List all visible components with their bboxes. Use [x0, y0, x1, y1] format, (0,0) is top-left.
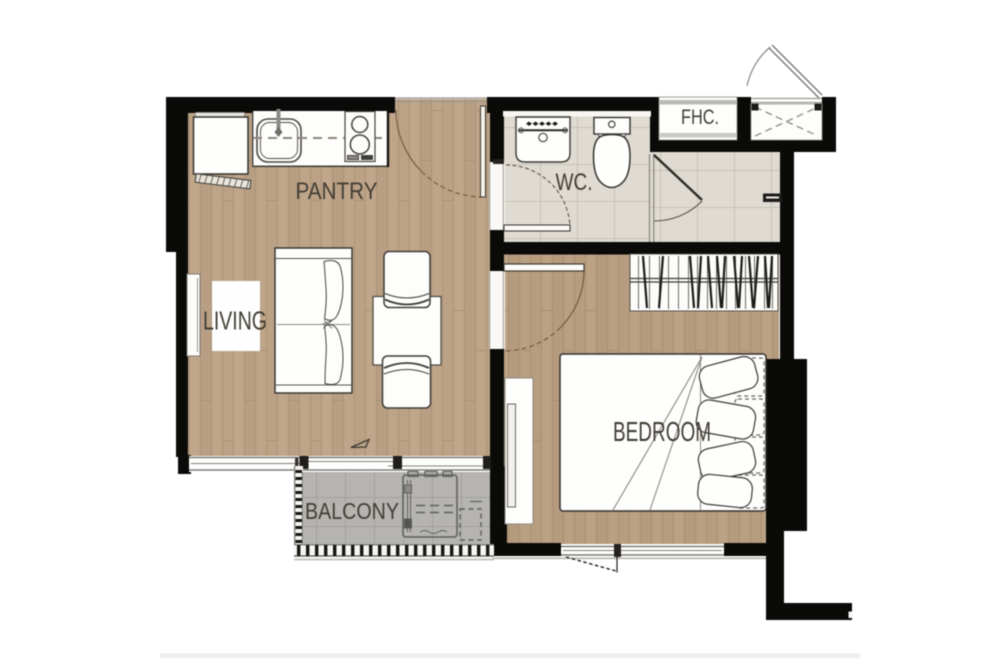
svg-text:PANTRY: PANTRY — [296, 178, 378, 205]
svg-text:WC.: WC. — [556, 169, 593, 196]
svg-text:FHC.: FHC. — [681, 105, 719, 129]
svg-text:LIVING: LIVING — [203, 308, 267, 336]
svg-text:BALCONY: BALCONY — [305, 498, 399, 524]
svg-text:BEDROOM: BEDROOM — [613, 416, 711, 447]
